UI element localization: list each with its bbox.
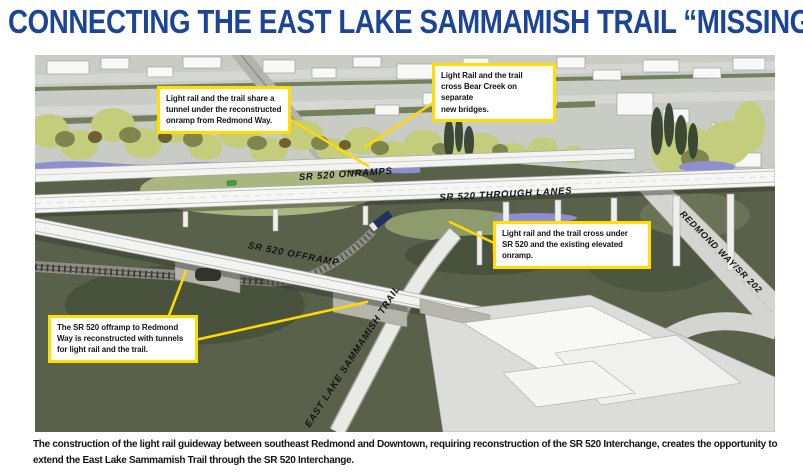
figure-caption: The construction of the light rail guide… <box>33 437 785 468</box>
callout-offramp-tunnels: The SR 520 offramp to Redmond Way is rec… <box>48 315 198 363</box>
figure-page: CONNECTING THE EAST LAKE SAMMAMISH TRAIL… <box>0 0 803 472</box>
car <box>227 181 236 186</box>
callout-tunnel-onramp: Light rail and the trail share a tunnel … <box>157 86 291 134</box>
callout-cross-under: Light rail and the trail cross under SR … <box>493 221 651 269</box>
callout-bear-creek: Light Rail and the trail cross Bear Cree… <box>432 63 556 122</box>
aerial-rendering: SR 520 ONRAMPS SR 520 THROUGH LANES SR 5… <box>35 55 775 432</box>
page-title: CONNECTING THE EAST LAKE SAMMAMISH TRAIL… <box>8 3 803 41</box>
